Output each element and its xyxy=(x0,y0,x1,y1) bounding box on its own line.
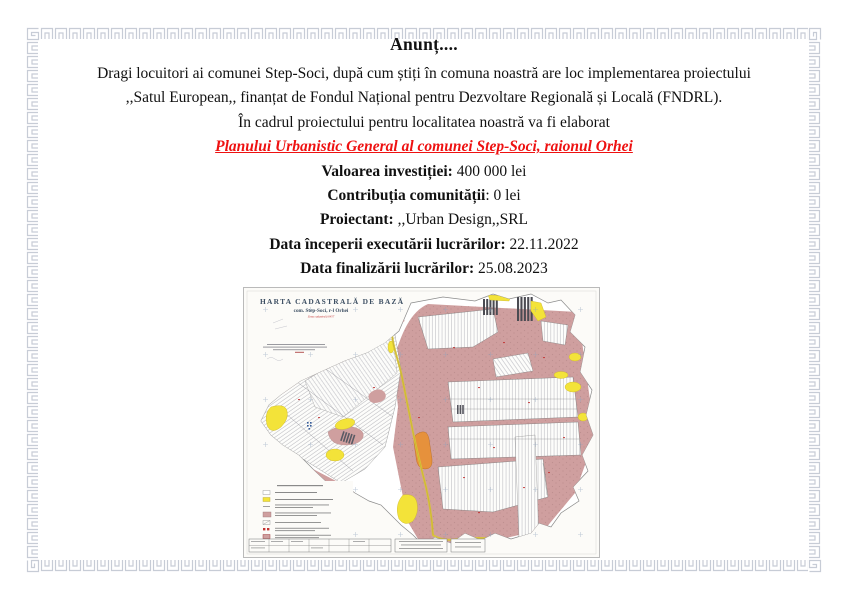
border-corner-tr xyxy=(808,27,822,41)
detail-contribution: Contribuția comunității: 0 lei xyxy=(58,184,790,208)
border-bottom xyxy=(40,559,808,573)
intro-line-2: ,,Satul European,, finanțat de Fondul Na… xyxy=(58,86,790,110)
map-subnote: Zona cadastrală 6457 xyxy=(308,315,335,319)
border-corner-br xyxy=(808,559,822,573)
intro-line-3: În cadrul proiectului pentru localitatea… xyxy=(58,111,790,135)
map-legend xyxy=(257,481,353,543)
detail-value: 22.11.2022 xyxy=(506,236,579,253)
document-page: Anunț.... Dragi locuitori ai comunei Ste… xyxy=(0,0,848,600)
detail-label: Data finalizării lucrărilor: xyxy=(300,260,474,277)
detail-investment: Valoarea investiției: 400 000 lei xyxy=(58,160,790,184)
cadastral-map-svg: HARTA CADASTRALĂ DE BAZĂ com. Step-Soci,… xyxy=(243,287,600,558)
detail-designer: Proiectant: ,,Urban Design,,SRL xyxy=(58,208,790,232)
detail-label: Valoarea investiției: xyxy=(322,163,453,180)
map-subtitle: com. Step-Soci, r-l Orhei xyxy=(294,308,349,314)
detail-value: 25.08.2023 xyxy=(474,260,548,277)
detail-label: Proiectant: xyxy=(320,211,394,228)
detail-end-date: Data finalizării lucrărilor: 25.08.2023 xyxy=(58,257,790,281)
detail-value: ,,Urban Design,,SRL xyxy=(394,211,528,228)
border-corner-bl xyxy=(26,559,40,573)
border-corner-tl xyxy=(26,27,40,41)
cadastral-map-image: HARTA CADASTRALĂ DE BAZĂ com. Step-Soci,… xyxy=(243,287,600,558)
map-title: HARTA CADASTRALĂ DE BAZĂ xyxy=(260,296,404,306)
announcement-title: Anunț.... xyxy=(58,33,790,55)
project-title: Planului Urbanistic General al comunei S… xyxy=(215,138,633,155)
detail-start-date: Data începerii executării lucrărilor: 22… xyxy=(58,233,790,257)
detail-value: : 0 lei xyxy=(485,187,520,204)
border-right xyxy=(808,41,822,559)
detail-label: Contribuția comunității xyxy=(327,187,485,204)
detail-label: Data începerii executării lucrărilor: xyxy=(269,236,505,253)
intro-line-1: Dragi locuitori ai comunei Step-Soci, du… xyxy=(58,62,790,86)
announcement: Anunț.... Dragi locuitori ai comunei Ste… xyxy=(58,33,790,282)
border-left xyxy=(26,41,40,559)
detail-value: 400 000 lei xyxy=(453,163,527,180)
